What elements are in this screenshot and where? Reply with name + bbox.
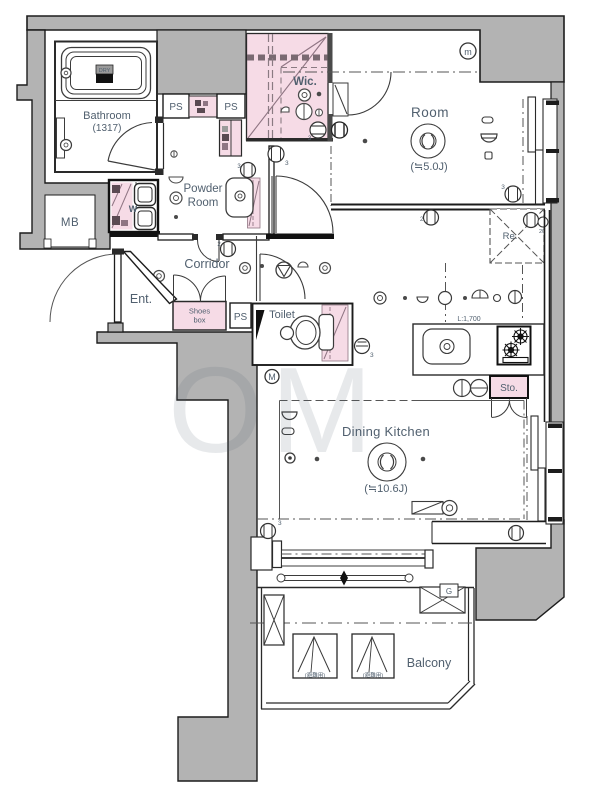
svg-text:PS: PS [234, 312, 248, 323]
svg-text:Powder: Powder [184, 183, 223, 195]
svg-text:(避難用): (避難用) [363, 671, 383, 679]
svg-text:(1317): (1317) [93, 123, 122, 134]
svg-text:L:1,700: L:1,700 [457, 316, 480, 323]
svg-text:DRY: DRY [99, 68, 111, 74]
svg-text:(≒10.6J): (≒10.6J) [364, 483, 407, 495]
svg-text:Ent.: Ent. [130, 292, 152, 306]
svg-text:3: 3 [285, 160, 289, 167]
svg-text:3: 3 [278, 520, 282, 527]
svg-text:box: box [193, 316, 205, 325]
svg-text:PS: PS [169, 102, 183, 113]
svg-text:Sto.: Sto. [500, 383, 518, 394]
svg-text:Bathroom: Bathroom [83, 110, 131, 122]
svg-text:m: m [464, 47, 472, 57]
svg-text:Toilet: Toilet [269, 309, 295, 321]
svg-text:Room: Room [411, 105, 449, 120]
svg-text:Corridor: Corridor [184, 257, 229, 271]
svg-text:MB: MB [61, 217, 79, 229]
svg-text:Wic.: Wic. [293, 76, 317, 88]
svg-text:(≒5.0J): (≒5.0J) [410, 161, 447, 173]
svg-text:PS: PS [224, 102, 238, 113]
svg-text:3: 3 [501, 184, 505, 191]
svg-text:(避難用): (避難用) [305, 671, 325, 679]
svg-text:Re.: Re. [503, 231, 518, 242]
svg-text:G: G [446, 587, 452, 596]
svg-text:OM: OM [168, 342, 381, 478]
svg-text:Shoes: Shoes [189, 307, 211, 316]
svg-text:W: W [129, 204, 138, 214]
svg-text:Room: Room [188, 197, 219, 209]
svg-text:Balcony: Balcony [407, 656, 452, 670]
